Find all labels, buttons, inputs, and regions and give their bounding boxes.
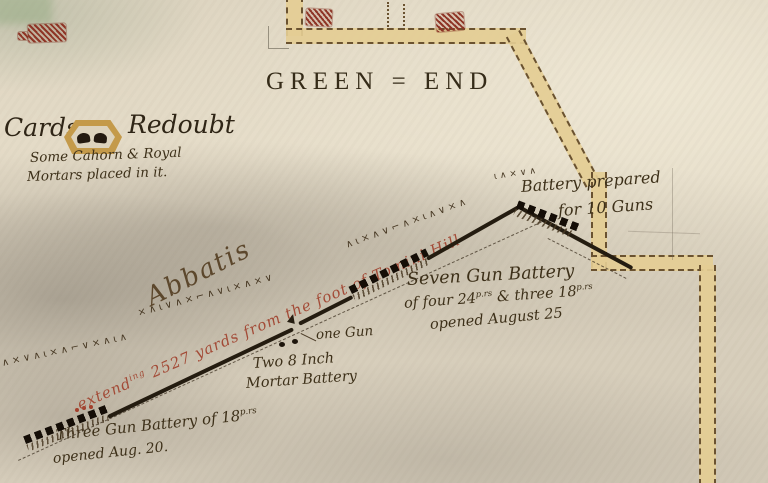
building-cluster-northwest-small <box>18 32 28 40</box>
red-mark-dot-1 <box>75 408 79 412</box>
fort-mortar-mark-1 <box>76 132 90 144</box>
road-south-vertical <box>699 265 716 483</box>
mortar-dot-2 <box>292 339 298 344</box>
field-boundary-corner <box>268 26 289 49</box>
region-title: GREEN = END <box>266 68 493 96</box>
building-cluster-2 <box>435 12 464 32</box>
three-gun-line1-sup: p.rs <box>239 406 257 418</box>
paper-scratch-vertical <box>672 168 673 260</box>
road-green-end-horizontal <box>286 28 526 44</box>
building-cluster-northwest <box>28 23 67 42</box>
seven-gun-line2-sup-b: p.rs <box>576 281 593 292</box>
mortar-dot-1 <box>279 342 285 347</box>
dotted-lane-right <box>403 4 405 30</box>
seven-gun-line2-sup-a: p.rs <box>475 288 492 299</box>
dotted-lane-left <box>387 2 389 30</box>
cards-redoubt-name-right: Redoubt <box>128 110 235 139</box>
building-cluster-1 <box>306 8 333 26</box>
fort-mortar-mark-2 <box>94 132 108 143</box>
green-wash-patch <box>0 0 52 24</box>
historical-siege-map: GREEN = END Cards Redoubt Some Cahorn & … <box>0 0 768 483</box>
